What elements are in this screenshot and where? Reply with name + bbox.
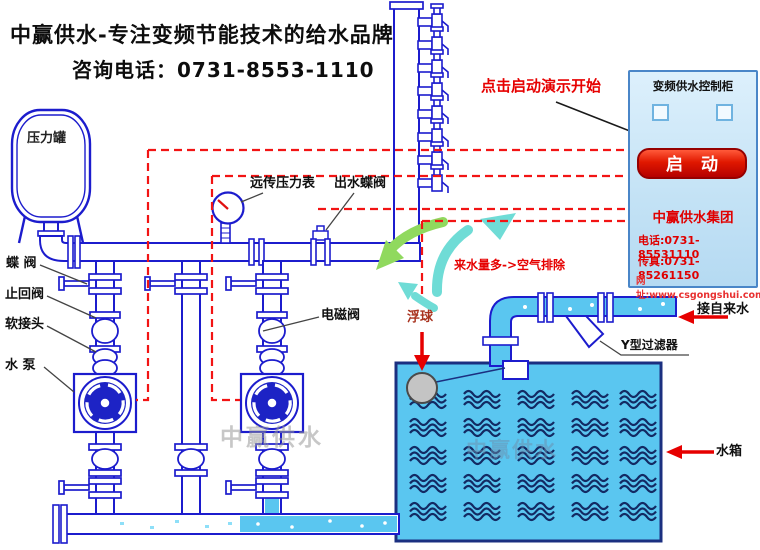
cyan-arrow-up-icon — [437, 213, 516, 292]
label-flex-joint: 软接头 — [5, 318, 44, 332]
label-y-filter: Y型过滤器 — [621, 339, 678, 352]
hotline-phone: 咨询电话：0731-8553-1110 — [72, 59, 375, 81]
demo-start-hint: 点击启动演示开始 — [481, 78, 601, 95]
indicator-light-1 — [652, 104, 669, 121]
main-pipe — [68, 226, 420, 268]
control-cabinet-panel: 变频供水控制柜 启 动 中赢供水集团 电话:0731-85531110 传真:0… — [628, 70, 758, 288]
start-button[interactable]: 启 动 — [637, 148, 747, 179]
water-tank-arrow-icon — [666, 445, 714, 459]
pump2-water-fill — [265, 497, 279, 515]
label-pump: 水 泵 — [5, 359, 36, 373]
company-website: 网址:www.csgongshui.com — [636, 273, 760, 301]
label-pressure-tank: 压力罐 — [27, 132, 66, 146]
label-tap-water-inlet: 接自来水 — [697, 303, 749, 317]
cabinet-title: 变频供水控制柜 — [630, 78, 756, 94]
label-outlet-butterfly-valve: 出水蝶阀 — [334, 177, 386, 191]
label-water-tank: 水箱 — [716, 445, 742, 459]
label-butterfly-valve: 蝶 阀 — [6, 257, 37, 271]
middle-pipe — [182, 261, 200, 515]
brand-slogan: 中赢供水-专注变频节能技术的给水品牌 — [10, 24, 394, 47]
cyan-arrow-small-icon — [398, 282, 434, 308]
label-check-valve: 止回阀 — [5, 288, 44, 302]
indicator-light-2 — [716, 104, 733, 121]
label-air-release-note: 来水量多->空气排除 — [454, 259, 565, 272]
label-float-ball: 浮球 — [407, 311, 433, 325]
company-name: 中赢供水集团 — [630, 206, 756, 226]
pressure-gauge-icon — [213, 193, 244, 244]
release-valve-icons — [418, 4, 448, 193]
label-remote-pressure-gauge: 远传压力表 — [250, 177, 315, 191]
label-solenoid-valve: 电磁阀 — [321, 309, 360, 323]
demo-stage: 中赢供水-专注变频节能技术的给水品牌 咨询电话：0731-8553-1110 点… — [0, 0, 760, 550]
